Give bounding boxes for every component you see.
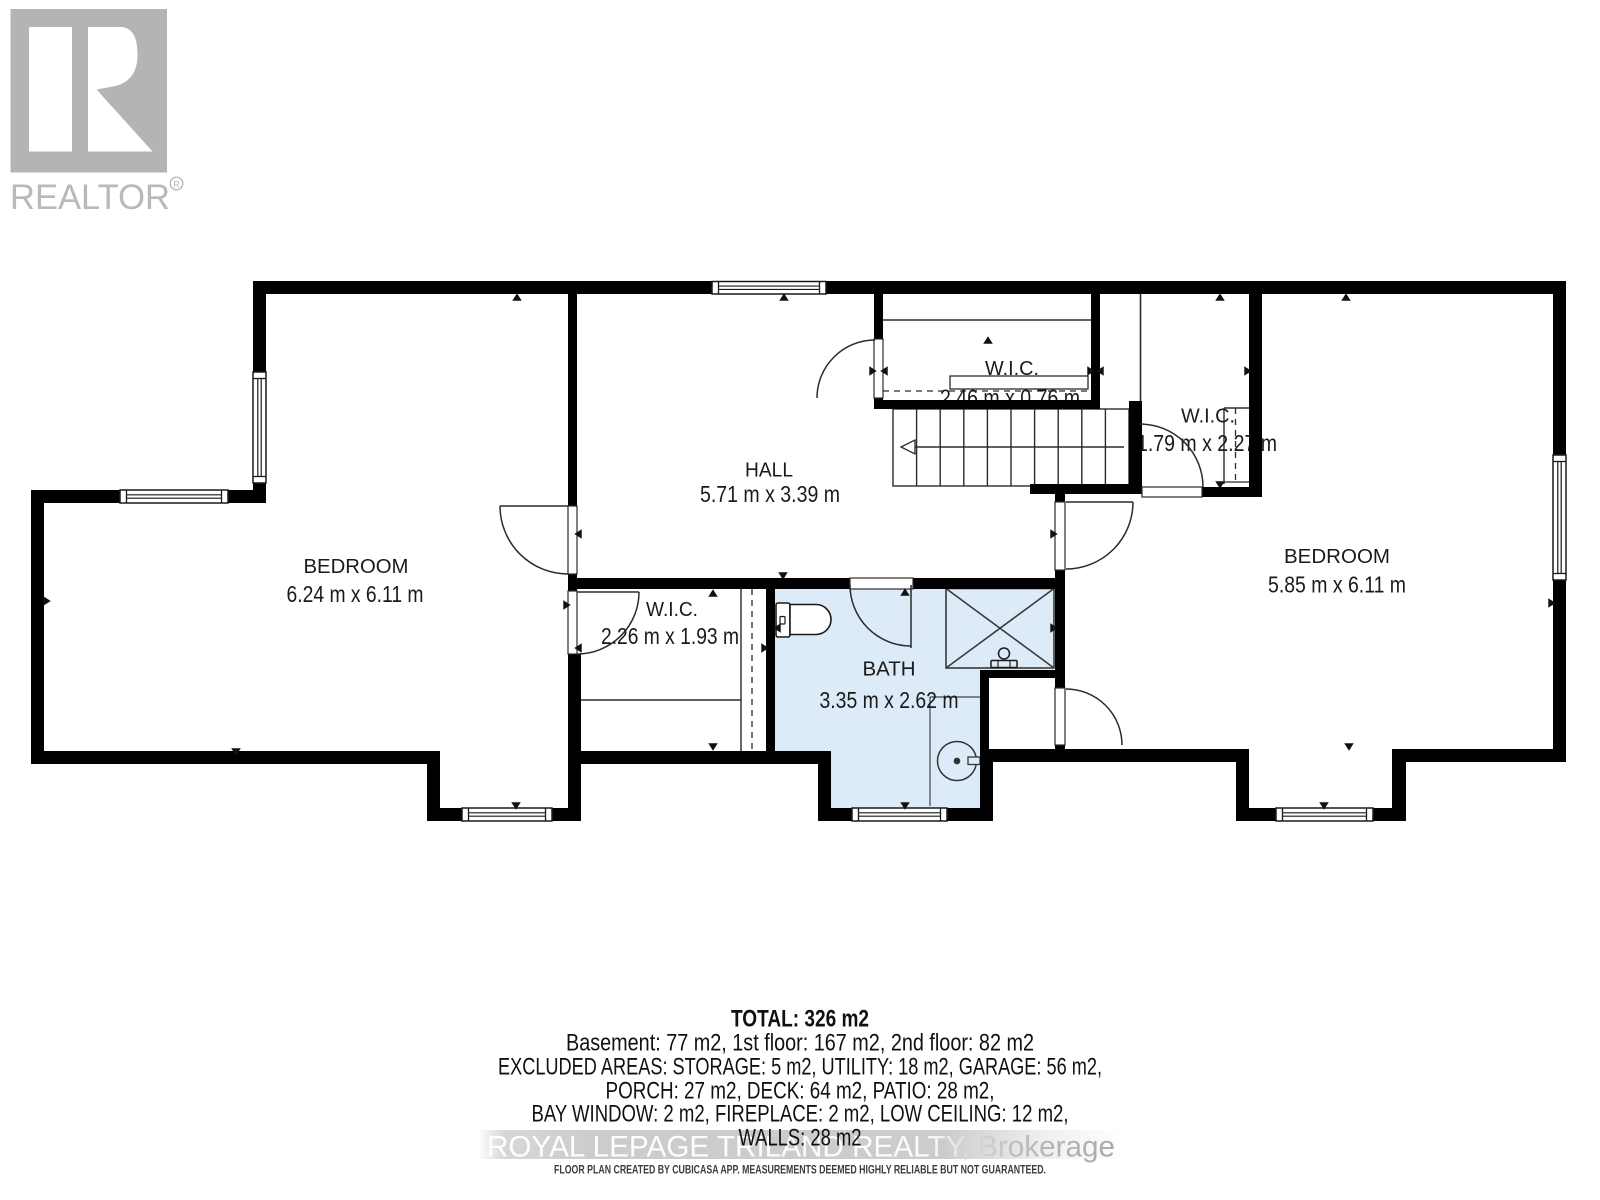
- svg-text:REALTOR: REALTOR: [10, 177, 170, 217]
- svg-text:BEDROOM: BEDROOM: [1284, 545, 1390, 568]
- svg-text:EXCLUDED AREAS: STORAGE: 5 m2,: EXCLUDED AREAS: STORAGE: 5 m2, UTILITY: …: [498, 1054, 1102, 1081]
- svg-text:Basement: 77 m2, 1st floor: 16: Basement: 77 m2, 1st floor: 167 m2, 2nd …: [566, 1030, 1034, 1057]
- svg-text:3.35 m x 2.62 m: 3.35 m x 2.62 m: [820, 687, 959, 713]
- svg-text:5.71 m x 3.39 m: 5.71 m x 3.39 m: [700, 481, 840, 507]
- svg-text:BATH: BATH: [863, 658, 916, 681]
- svg-text:W.I.C.: W.I.C.: [646, 598, 698, 621]
- svg-text:TOTAL: 326 m2: TOTAL: 326 m2: [731, 1006, 869, 1033]
- svg-text:5.85 m x 6.11 m: 5.85 m x 6.11 m: [1268, 572, 1406, 598]
- svg-text:W.I.C.: W.I.C.: [985, 357, 1039, 380]
- svg-text:6.24 m x 6.11 m: 6.24 m x 6.11 m: [287, 581, 424, 607]
- svg-text:W.I.C.: W.I.C.: [1181, 405, 1235, 428]
- svg-text:HALL: HALL: [745, 459, 793, 482]
- svg-text:R: R: [173, 180, 180, 190]
- svg-text:FLOOR PLAN CREATED BY CUBICASA: FLOOR PLAN CREATED BY CUBICASA APP. MEAS…: [554, 1163, 1046, 1177]
- svg-text:BAY WINDOW: 2 m2, FIREPLACE: 2: BAY WINDOW: 2 m2, FIREPLACE: 2 m2, LOW C…: [532, 1101, 1069, 1128]
- svg-text:WALLS: 28 m2: WALLS: 28 m2: [739, 1125, 862, 1152]
- svg-text:BEDROOM: BEDROOM: [304, 555, 409, 578]
